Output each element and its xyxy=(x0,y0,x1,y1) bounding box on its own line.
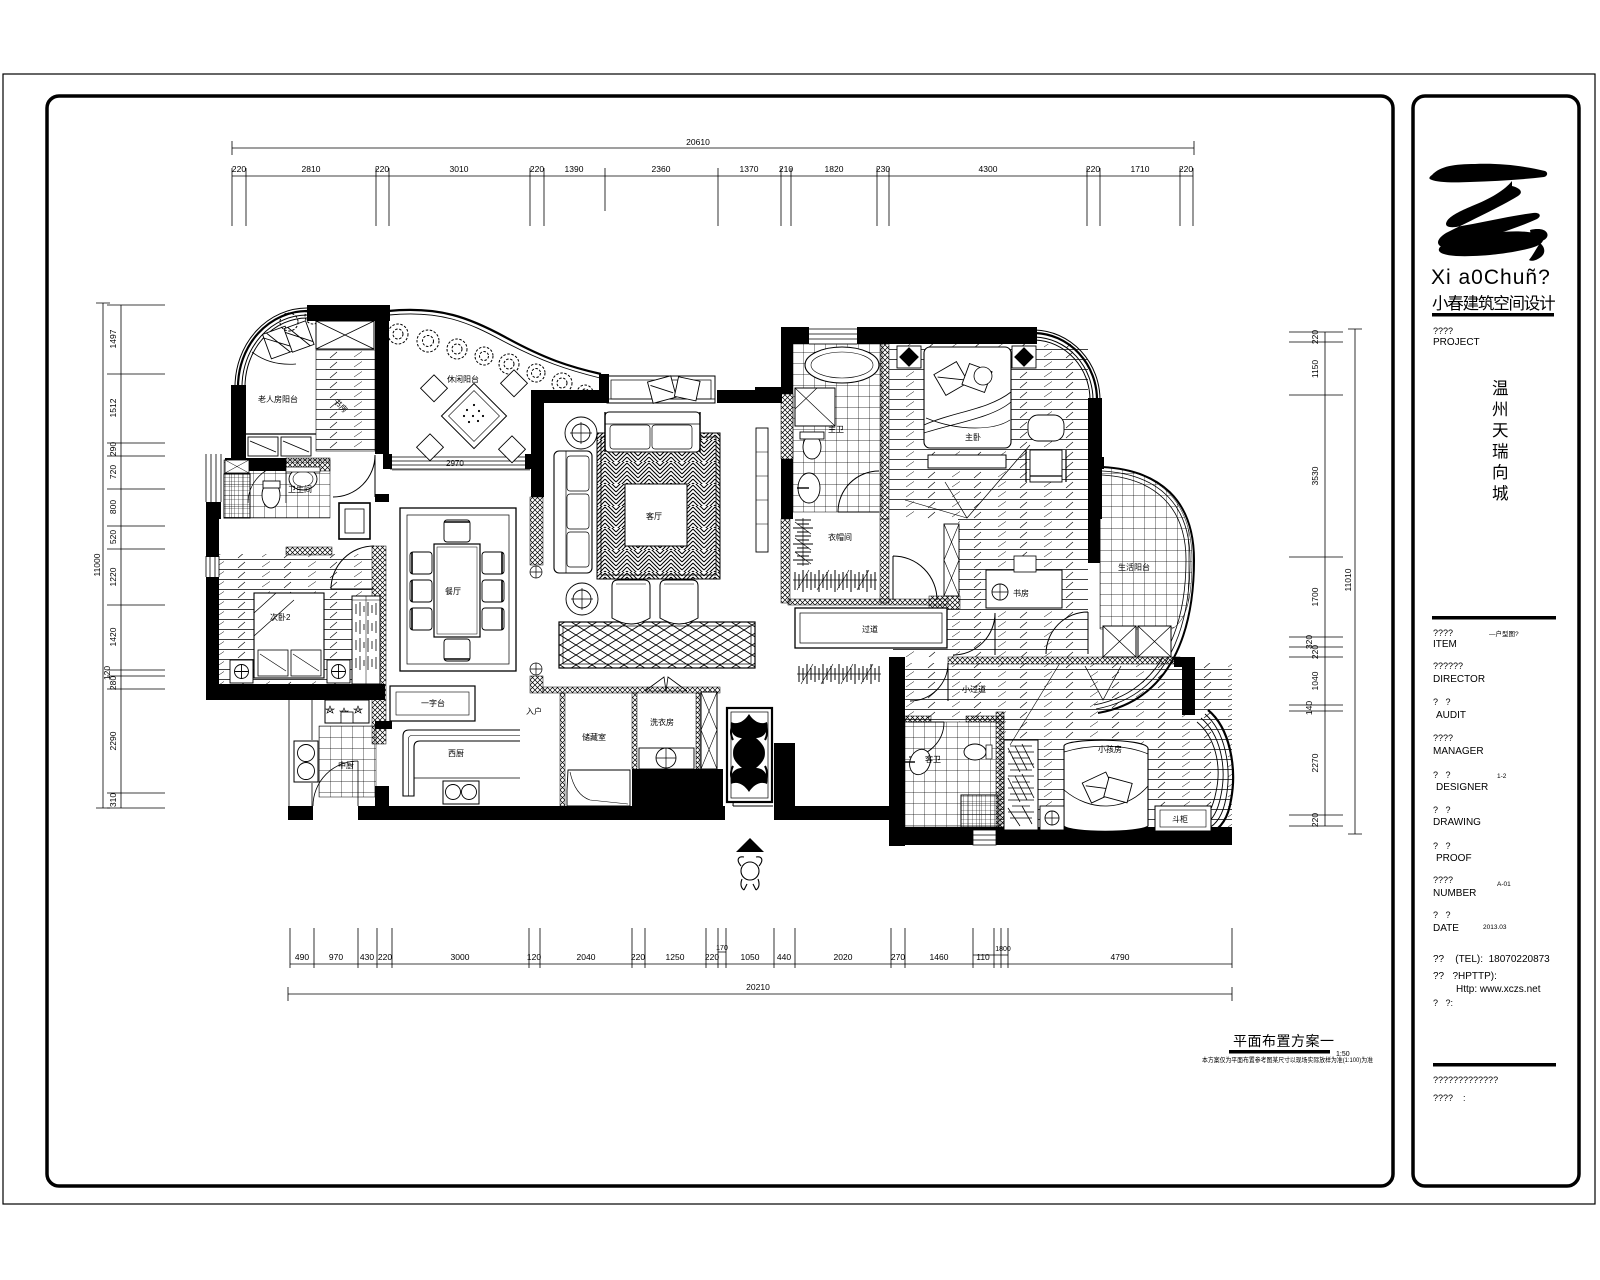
svg-text:? ?: ? ? xyxy=(1433,841,1451,851)
svg-text:洗衣房: 洗衣房 xyxy=(650,717,674,727)
svg-text:1700: 1700 xyxy=(1310,587,1320,606)
svg-text:Http: www.xczs.net: Http: www.xczs.net xyxy=(1456,984,1541,995)
svg-text:餐厅: 餐厅 xyxy=(445,587,461,596)
svg-text:1460: 1460 xyxy=(930,952,949,962)
svg-text:???? :: ???? : xyxy=(1433,1093,1466,1103)
svg-text:110: 110 xyxy=(976,952,990,962)
svg-text:客卫: 客卫 xyxy=(925,754,941,764)
svg-text:小过道: 小过道 xyxy=(962,684,986,694)
svg-text:DIRECTOR: DIRECTOR xyxy=(1433,674,1485,685)
svg-text:4790: 4790 xyxy=(1111,952,1130,962)
svg-text:11010: 11010 xyxy=(1343,568,1353,591)
svg-text:220: 220 xyxy=(530,164,544,174)
svg-text:????: ???? xyxy=(1433,875,1453,885)
svg-text:4300: 4300 xyxy=(979,164,998,174)
svg-text:3010: 3010 xyxy=(450,164,469,174)
svg-text:220: 220 xyxy=(378,952,392,962)
svg-text:??????: ?????? xyxy=(1433,661,1463,671)
svg-text:1220: 1220 xyxy=(108,567,118,586)
svg-text:3000: 3000 xyxy=(451,952,470,962)
svg-text:温: 温 xyxy=(1492,379,1509,398)
svg-text:休闲阳台: 休闲阳台 xyxy=(447,374,479,384)
svg-text:3530: 3530 xyxy=(1310,466,1320,485)
svg-text:? ?: ? ? xyxy=(1433,910,1451,920)
svg-text:DATE: DATE xyxy=(1433,923,1459,934)
svg-text:????: ???? xyxy=(1433,628,1453,638)
svg-text:????: ???? xyxy=(1433,733,1453,743)
svg-text:储藏室: 储藏室 xyxy=(582,732,606,742)
svg-text:斗柜: 斗柜 xyxy=(1172,814,1188,824)
svg-text:2020: 2020 xyxy=(834,952,853,962)
svg-text:280: 280 xyxy=(108,676,118,690)
svg-text:PROOF: PROOF xyxy=(1436,853,1472,864)
svg-text:2290: 2290 xyxy=(108,731,118,750)
svg-text:220: 220 xyxy=(1310,645,1320,659)
svg-text:970: 970 xyxy=(329,952,343,962)
svg-text:230: 230 xyxy=(876,164,890,174)
svg-text:270: 270 xyxy=(891,952,905,962)
svg-text:800: 800 xyxy=(108,500,118,514)
svg-text:小孩房: 小孩房 xyxy=(1098,744,1122,754)
svg-text:本方案仅为平面布置参考图某尺寸以现场实际放样为准(1:100: 本方案仅为平面布置参考图某尺寸以现场实际放样为准(1:100)为准 xyxy=(1202,1055,1373,1064)
svg-text:2970: 2970 xyxy=(446,459,464,468)
svg-text:主卫: 主卫 xyxy=(828,424,844,434)
svg-text:西厨: 西厨 xyxy=(448,749,464,758)
svg-text:州: 州 xyxy=(1492,401,1509,419)
svg-text:—户型图?: —户型图? xyxy=(1489,629,1519,638)
svg-text:1-2: 1-2 xyxy=(1497,773,1507,780)
svg-text:1050: 1050 xyxy=(741,952,760,962)
svg-text:2040: 2040 xyxy=(577,952,596,962)
svg-text:AUDIT: AUDIT xyxy=(1436,710,1466,721)
svg-text:2360: 2360 xyxy=(652,164,671,174)
svg-text:? ?: ? ? xyxy=(1433,697,1451,707)
svg-text:1820: 1820 xyxy=(825,164,844,174)
svg-text:天: 天 xyxy=(1492,422,1509,440)
svg-text:170: 170 xyxy=(716,945,728,952)
svg-text:书房: 书房 xyxy=(1013,588,1029,598)
svg-text:?? (TEL): 18070220873: ?? (TEL): 18070220873 xyxy=(1433,954,1550,965)
svg-text:A-01: A-01 xyxy=(1497,881,1511,888)
svg-text:220: 220 xyxy=(375,164,389,174)
svg-text:? ?:: ? ?: xyxy=(1433,998,1453,1008)
svg-text:PROJECT: PROJECT xyxy=(1433,337,1480,348)
svg-text:老人房阳台: 老人房阳台 xyxy=(258,394,298,404)
svg-text:向: 向 xyxy=(1492,463,1509,482)
svg-text:220: 220 xyxy=(1086,164,1100,174)
svg-text:1710: 1710 xyxy=(1131,164,1150,174)
svg-text:220: 220 xyxy=(1179,164,1193,174)
svg-text:1040: 1040 xyxy=(1310,671,1320,690)
svg-text:客厅: 客厅 xyxy=(646,511,662,521)
svg-text:220: 220 xyxy=(705,952,719,962)
svg-text:MANAGER: MANAGER xyxy=(1433,746,1484,757)
svg-text:生活阳台: 生活阳台 xyxy=(1118,562,1150,572)
svg-text:220: 220 xyxy=(1310,813,1320,827)
svg-text:1800: 1800 xyxy=(995,946,1011,953)
svg-text:一字台: 一字台 xyxy=(421,698,445,708)
svg-text:? ?: ? ? xyxy=(1433,805,1451,815)
svg-text:瑞: 瑞 xyxy=(1492,442,1509,461)
svg-text:?? ?HPTTP):: ?? ?HPTTP): xyxy=(1433,971,1497,982)
svg-text:220: 220 xyxy=(1310,330,1320,344)
svg-text:2810: 2810 xyxy=(302,164,321,174)
svg-text:310: 310 xyxy=(108,793,118,807)
svg-text:主卧: 主卧 xyxy=(965,432,981,442)
svg-text:中厨: 中厨 xyxy=(338,760,354,770)
svg-text:卫生间: 卫生间 xyxy=(288,484,312,494)
svg-text:220: 220 xyxy=(232,164,246,174)
svg-text:120: 120 xyxy=(527,952,541,962)
svg-text:1250: 1250 xyxy=(666,952,685,962)
svg-text:平面布置方案一: 平面布置方案一 xyxy=(1233,1033,1335,1049)
svg-text:210: 210 xyxy=(779,164,793,174)
svg-text:1150: 1150 xyxy=(1310,360,1320,379)
svg-text:次卧2: 次卧2 xyxy=(270,612,291,622)
svg-text:20610: 20610 xyxy=(686,137,710,147)
svg-text:11000: 11000 xyxy=(92,553,102,576)
svg-text:490: 490 xyxy=(295,952,309,962)
svg-text:220: 220 xyxy=(631,952,645,962)
svg-text:2270: 2270 xyxy=(1310,753,1320,772)
svg-text:20210: 20210 xyxy=(746,982,770,992)
svg-text:NUMBER: NUMBER xyxy=(1433,888,1476,899)
svg-text:140: 140 xyxy=(1304,701,1314,715)
svg-text:城: 城 xyxy=(1492,484,1509,503)
svg-text:1370: 1370 xyxy=(740,164,759,174)
svg-text:DESIGNER: DESIGNER xyxy=(1436,782,1488,793)
svg-text:? ?: ? ? xyxy=(1433,770,1451,780)
svg-text:1390: 1390 xyxy=(565,164,584,174)
svg-text:1512: 1512 xyxy=(108,398,118,417)
svg-text:衣帽间: 衣帽间 xyxy=(828,532,852,542)
svg-text:1420: 1420 xyxy=(108,627,118,646)
svg-text:1497: 1497 xyxy=(108,329,118,348)
svg-text:入户: 入户 xyxy=(526,706,542,716)
svg-text:过道: 过道 xyxy=(862,624,878,634)
svg-text:440: 440 xyxy=(777,952,791,962)
svg-text:290: 290 xyxy=(108,442,118,456)
svg-text:2013.03: 2013.03 xyxy=(1483,924,1507,931)
svg-text:DRAWING: DRAWING xyxy=(1433,817,1481,828)
svg-text:520: 520 xyxy=(108,530,118,544)
svg-text:小春建筑空间设计: 小春建筑空间设计 xyxy=(1432,294,1555,313)
svg-text:ITEM: ITEM xyxy=(1433,639,1457,650)
svg-text:720: 720 xyxy=(108,465,118,479)
svg-text:????: ???? xyxy=(1433,326,1453,336)
svg-text:430: 430 xyxy=(360,952,374,962)
svg-text:?????????????: ????????????? xyxy=(1433,1075,1498,1085)
svg-text:Xi a0Chuñ?: Xi a0Chuñ? xyxy=(1431,266,1551,289)
